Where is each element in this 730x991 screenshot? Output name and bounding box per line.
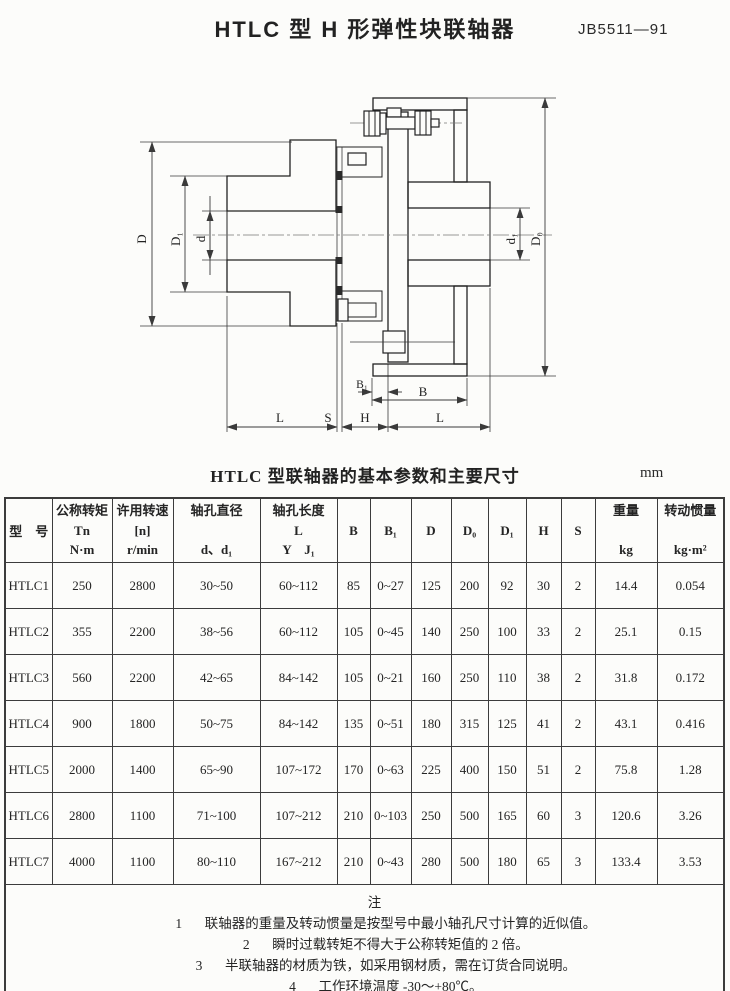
table-cell: 500 <box>451 839 488 885</box>
col-header-weight: 重量kg <box>595 498 657 563</box>
table-cell: 25.1 <box>595 609 657 655</box>
table-cell: 400 <box>451 747 488 793</box>
table-cell: 84~142 <box>260 655 337 701</box>
note-item: 4工作环境温度 -30～+80℃。 <box>36 976 713 991</box>
table-cell: 0~63 <box>370 747 411 793</box>
table-cell: 2800 <box>112 563 173 609</box>
label-d: d <box>193 235 208 242</box>
table-cell: 3.53 <box>657 839 724 885</box>
col-header-bore-len: 轴孔长度LY J₁ <box>260 498 337 563</box>
table-caption: HTLC 型联轴器的基本参数和主要尺寸 <box>0 462 730 487</box>
table-cell: 160 <box>411 655 451 701</box>
table-cell: 250 <box>411 793 451 839</box>
table-cell: 38~56 <box>173 609 260 655</box>
table-cell: 0.416 <box>657 701 724 747</box>
table-cell: 60~112 <box>260 609 337 655</box>
table-row: HTLC2355220038~5660~1121050~451402501003… <box>5 609 724 655</box>
table-cell: 30~50 <box>173 563 260 609</box>
table-cell: 2800 <box>52 793 112 839</box>
table-cell: 0~27 <box>370 563 411 609</box>
table-cell: HTLC7 <box>5 839 52 885</box>
table-cell: 0~43 <box>370 839 411 885</box>
label-H: H <box>360 410 369 425</box>
table-cell: 85 <box>337 563 370 609</box>
table-cell: 4000 <box>52 839 112 885</box>
table-cell: 43.1 <box>595 701 657 747</box>
note-text: 工作环境温度 -30～+80℃。 <box>319 979 483 991</box>
table-cell: 355 <box>52 609 112 655</box>
label-L-right: L <box>436 410 444 425</box>
table-cell: 1800 <box>112 701 173 747</box>
table-cell: 133.4 <box>595 839 657 885</box>
col-header-D0: D₀ <box>451 498 488 563</box>
label-B1: B₁ <box>356 379 368 391</box>
table-cell: 1100 <box>112 793 173 839</box>
table-cell: 60~112 <box>260 563 337 609</box>
table-cell: HTLC1 <box>5 563 52 609</box>
table-row: HTLC52000140065~90107~1721700~6322540015… <box>5 747 724 793</box>
col-header-B: B <box>337 498 370 563</box>
table-cell: HTLC5 <box>5 747 52 793</box>
label-d1: d₁ <box>503 233 518 244</box>
table-cell: 65 <box>526 839 561 885</box>
table-cell: 0~51 <box>370 701 411 747</box>
col-header-B1: B₁ <box>370 498 411 563</box>
table-cell: 167~212 <box>260 839 337 885</box>
table-cell: 0.15 <box>657 609 724 655</box>
table-cell: 170 <box>337 747 370 793</box>
label-D0: D₀ <box>528 232 543 246</box>
extension-lines <box>140 98 556 432</box>
document-page: HTLC 型 H 形弹性块联轴器 JB5511—91 <box>0 0 730 991</box>
table-row: HTLC3560220042~6584~1421050~211602501103… <box>5 655 724 701</box>
table-cell: 33 <box>526 609 561 655</box>
table-cell: 315 <box>451 701 488 747</box>
label-D1: D₁ <box>168 232 183 246</box>
table-cell: 71~100 <box>173 793 260 839</box>
table-cell: 14.4 <box>595 563 657 609</box>
col-header-torque: 公称转矩TnN·m <box>52 498 112 563</box>
note-text: 联轴器的重量及转动惯量是按型号中最小轴孔尺寸计算的近似值。 <box>205 916 597 931</box>
spec-table: 型 号 公称转矩TnN·m 许用转速[n]r/min 轴孔直径d、d₁ 轴孔长度… <box>4 497 725 991</box>
table-cell: 200 <box>451 563 488 609</box>
col-header-D1: D₁ <box>488 498 526 563</box>
table-cell: 105 <box>337 609 370 655</box>
table-body: HTLC1250280030~5060~112850~2712520092302… <box>5 563 724 885</box>
right-plate-section <box>383 112 408 362</box>
table-cell: 210 <box>337 793 370 839</box>
table-cell: 84~142 <box>260 701 337 747</box>
table-cell: 31.8 <box>595 655 657 701</box>
table-cell: 1400 <box>112 747 173 793</box>
label-D: D <box>134 234 149 243</box>
table-cell: 180 <box>488 839 526 885</box>
col-header-H: H <box>526 498 561 563</box>
table-row: HTLC74000110080~110167~2122100~432805001… <box>5 839 724 885</box>
note-number: 4 <box>267 976 319 991</box>
table-cell: 3 <box>561 793 595 839</box>
note-number: 2 <box>220 934 272 955</box>
notes-row: 注 1联轴器的重量及转动惯量是按型号中最小轴孔尺寸计算的近似值。2瞬时过载转矩不… <box>5 885 724 991</box>
left-hub-section <box>227 140 382 326</box>
table-cell: 2200 <box>112 609 173 655</box>
col-header-S: S <box>561 498 595 563</box>
table-cell: HTLC6 <box>5 793 52 839</box>
table-cell: 150 <box>488 747 526 793</box>
col-header-D: D <box>411 498 451 563</box>
table-cell: 0.054 <box>657 563 724 609</box>
table-cell: 3 <box>561 839 595 885</box>
table-cell: 105 <box>337 655 370 701</box>
table-cell: 2 <box>561 701 595 747</box>
gap-lines <box>336 147 343 321</box>
table-cell: 50~75 <box>173 701 260 747</box>
table-cell: 250 <box>52 563 112 609</box>
note-number: 1 <box>153 913 205 934</box>
table-cell: 210 <box>337 839 370 885</box>
table-cell: 0~21 <box>370 655 411 701</box>
label-S: S <box>324 410 331 425</box>
col-header-speed: 许用转速[n]r/min <box>112 498 173 563</box>
table-cell: 92 <box>488 563 526 609</box>
coupling-section-drawing: D D₁ d d₁ D₀ B₁ B L S H L <box>0 0 730 455</box>
table-cell: 2200 <box>112 655 173 701</box>
table-cell: 500 <box>451 793 488 839</box>
notes-heading: 注 <box>36 892 713 913</box>
note-item: 2瞬时过载转矩不得大于公称转矩值的 2 倍。 <box>36 934 713 955</box>
table-cell: 2 <box>561 609 595 655</box>
table-cell: 107~172 <box>260 747 337 793</box>
note-item: 3半联轴器的材质为铁，如采用钢材质，需在订货合同说明。 <box>36 955 713 976</box>
table-row: HTLC1250280030~5060~112850~2712520092302… <box>5 563 724 609</box>
table-cell: HTLC4 <box>5 701 52 747</box>
table-cell: 38 <box>526 655 561 701</box>
header-row: 型 号 公称转矩TnN·m 许用转速[n]r/min 轴孔直径d、d₁ 轴孔长度… <box>5 498 724 563</box>
table-cell: 125 <box>488 701 526 747</box>
table-cell: 3.26 <box>657 793 724 839</box>
table-cell: 42~65 <box>173 655 260 701</box>
table-cell: 75.8 <box>595 747 657 793</box>
table-cell: 2000 <box>52 747 112 793</box>
table-cell: HTLC2 <box>5 609 52 655</box>
table-cell: 135 <box>337 701 370 747</box>
table-cell: 110 <box>488 655 526 701</box>
table-cell: 0.172 <box>657 655 724 701</box>
label-B: B <box>419 384 428 399</box>
table-cell: 140 <box>411 609 451 655</box>
elastic-block <box>338 299 376 321</box>
table-cell: 0~45 <box>370 609 411 655</box>
table-cell: 225 <box>411 747 451 793</box>
right-hub-section <box>408 182 490 286</box>
col-header-inertia: 转动惯量kg·m² <box>657 498 724 563</box>
notes-list: 1联轴器的重量及转动惯量是按型号中最小轴孔尺寸计算的近似值。2瞬时过载转矩不得大… <box>36 913 713 991</box>
col-header-model: 型 号 <box>5 498 52 563</box>
table-cell: 107~212 <box>260 793 337 839</box>
table-cell: 165 <box>488 793 526 839</box>
table-cell: 2 <box>561 655 595 701</box>
table-cell: 0~103 <box>370 793 411 839</box>
table-cell: 120.6 <box>595 793 657 839</box>
table-cell: 30 <box>526 563 561 609</box>
note-number: 3 <box>173 955 225 976</box>
table-cell: 1.28 <box>657 747 724 793</box>
table-cell: 51 <box>526 747 561 793</box>
col-header-bore-dia: 轴孔直径d、d₁ <box>173 498 260 563</box>
note-item: 1联轴器的重量及转动惯量是按型号中最小轴孔尺寸计算的近似值。 <box>36 913 713 934</box>
table-cell: 60 <box>526 793 561 839</box>
label-L-left: L <box>276 410 284 425</box>
table-cell: HTLC3 <box>5 655 52 701</box>
notes-section: 注 1联轴器的重量及转动惯量是按型号中最小轴孔尺寸计算的近似值。2瞬时过载转矩不… <box>6 885 723 991</box>
unit-label: mm <box>640 465 663 482</box>
table-cell: 41 <box>526 701 561 747</box>
table-row: HTLC62800110071~100107~2122100~103250500… <box>5 793 724 839</box>
table-cell: 1100 <box>112 839 173 885</box>
table-cell: 65~90 <box>173 747 260 793</box>
table-cell: 2 <box>561 563 595 609</box>
table-cell: 250 <box>451 609 488 655</box>
table-row: HTLC4900180050~7584~1421350~511803151254… <box>5 701 724 747</box>
table-cell: 280 <box>411 839 451 885</box>
table-cell: 2 <box>561 747 595 793</box>
table-cell: 560 <box>52 655 112 701</box>
table-cell: 80~110 <box>173 839 260 885</box>
note-text: 半联轴器的材质为铁，如采用钢材质，需在订货合同说明。 <box>225 958 576 973</box>
table-cell: 250 <box>451 655 488 701</box>
table-cell: 100 <box>488 609 526 655</box>
table-cell: 180 <box>411 701 451 747</box>
table-cell: 125 <box>411 563 451 609</box>
table-cell: 900 <box>52 701 112 747</box>
note-text: 瞬时过载转矩不得大于公称转矩值的 2 倍。 <box>272 937 529 952</box>
